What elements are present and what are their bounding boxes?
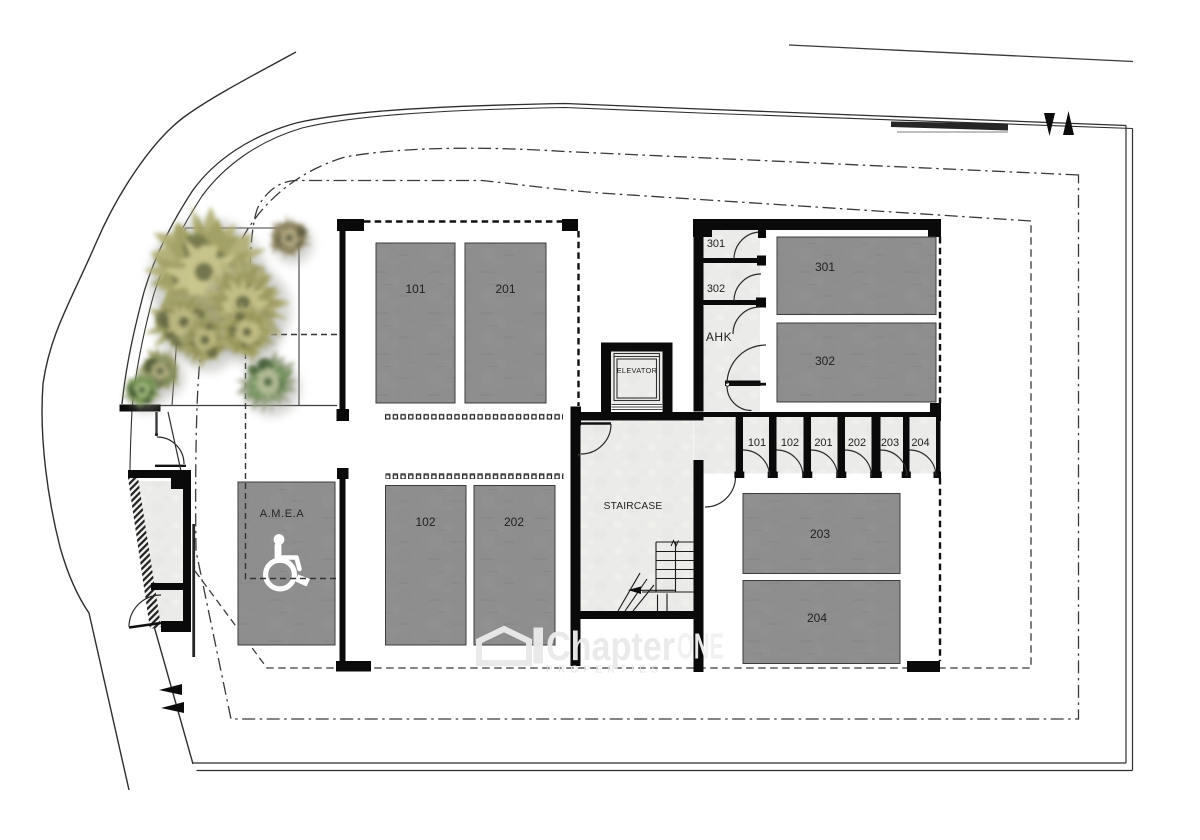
svg-text:302: 302	[707, 283, 725, 295]
svg-text:202: 202	[504, 515, 524, 529]
svg-text:PROPERTIES: PROPERTIES	[546, 665, 663, 676]
svg-text:101: 101	[748, 437, 766, 449]
svg-text:202: 202	[848, 437, 866, 449]
svg-text:203: 203	[881, 437, 899, 449]
svg-text:201: 201	[814, 437, 832, 449]
svg-text:ONE: ONE	[677, 626, 724, 667]
svg-text:302: 302	[815, 354, 835, 368]
svg-text:A.M.E.A: A.M.E.A	[260, 508, 305, 520]
svg-text:203: 203	[810, 527, 830, 541]
svg-text:101: 101	[405, 282, 425, 296]
svg-text:204: 204	[807, 611, 827, 625]
svg-text:102: 102	[781, 437, 799, 449]
svg-text:Chapter: Chapter	[546, 623, 675, 669]
svg-text:301: 301	[707, 238, 725, 250]
svg-text:204: 204	[911, 437, 929, 449]
svg-text:201: 201	[495, 282, 515, 296]
svg-text:AHK: AHK	[706, 330, 732, 344]
svg-text:301: 301	[815, 260, 835, 274]
svg-text:ELEVATOR: ELEVATOR	[617, 366, 658, 375]
svg-text:102: 102	[415, 515, 435, 529]
svg-text:STAIRCASE: STAIRCASE	[604, 501, 663, 512]
